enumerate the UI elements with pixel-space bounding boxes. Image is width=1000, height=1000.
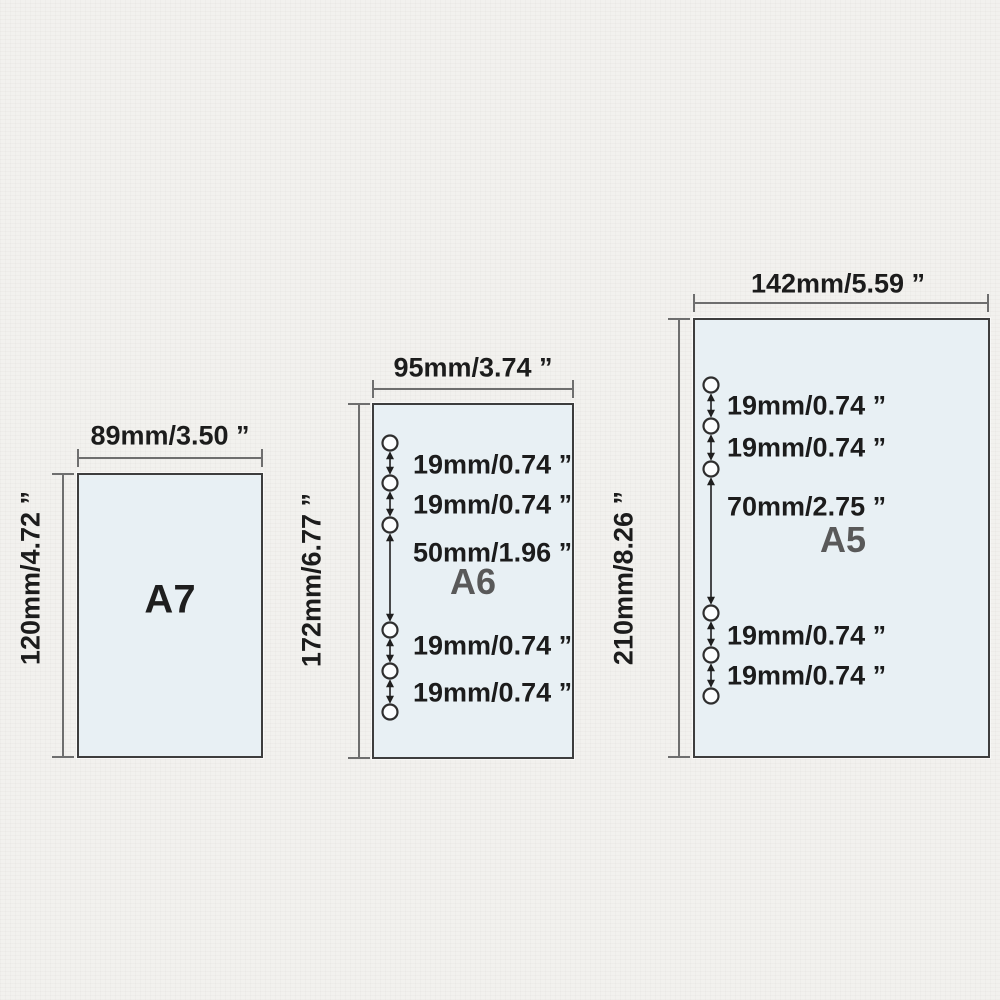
a6-spacing-label: 19mm/0.74 ”: [413, 631, 572, 662]
a6-width-dimension-line: [372, 388, 574, 390]
binder-hole-icon: [704, 648, 719, 663]
a6-spacing-label: 19mm/0.74 ”: [413, 678, 572, 709]
binder-hole-icon: [383, 623, 398, 638]
a6-spacing-label: 19mm/0.74 ”: [413, 450, 572, 481]
a7-width-label: 89mm/3.50 ”: [90, 421, 249, 452]
a5-spacing-label: 19mm/0.74 ”: [727, 433, 886, 464]
binder-hole-icon: [704, 378, 719, 393]
binder-hole-icon: [704, 419, 719, 434]
a5-width-dimension-line: [693, 302, 989, 304]
a7-size-name: A7: [144, 578, 195, 623]
binder-hole-icon: [704, 462, 719, 477]
a6-height-label: 172mm/6.77 ”: [297, 493, 328, 667]
a6-spacing-label: 19mm/0.74 ”: [413, 490, 572, 521]
a5-size-name: A5: [820, 519, 866, 561]
a5-spacing-label: 19mm/0.74 ”: [727, 621, 886, 652]
a5-height-label: 210mm/8.26 ”: [609, 491, 640, 665]
a7-width-dimension-line: [77, 457, 263, 459]
binder-hole-icon: [383, 705, 398, 720]
a5-spacing-label: 19mm/0.74 ”: [727, 391, 886, 422]
a7-height-label: 120mm/4.72 ”: [16, 491, 47, 665]
a5-height-dimension-line: [678, 318, 680, 758]
binder-hole-icon: [383, 436, 398, 451]
a6-height-dimension-line: [358, 403, 360, 759]
a6-width-label: 95mm/3.74 ”: [393, 353, 552, 384]
binder-hole-icon: [383, 664, 398, 679]
binder-hole-icon: [704, 689, 719, 704]
a6-size-name: A6: [450, 561, 496, 603]
a7-height-dimension-line: [62, 473, 64, 758]
binder-hole-icon: [704, 606, 719, 621]
paper-size-diagram: 89mm/3.50 ” 120mm/4.72 ” A7 95mm/3.74 ” …: [0, 0, 1000, 1000]
a5-spacing-label: 19mm/0.74 ”: [727, 661, 886, 692]
a5-spacing-label: 70mm/2.75 ”: [727, 492, 886, 523]
binder-hole-icon: [383, 518, 398, 533]
a5-width-label: 142mm/5.59 ”: [751, 269, 925, 300]
binder-hole-icon: [383, 476, 398, 491]
